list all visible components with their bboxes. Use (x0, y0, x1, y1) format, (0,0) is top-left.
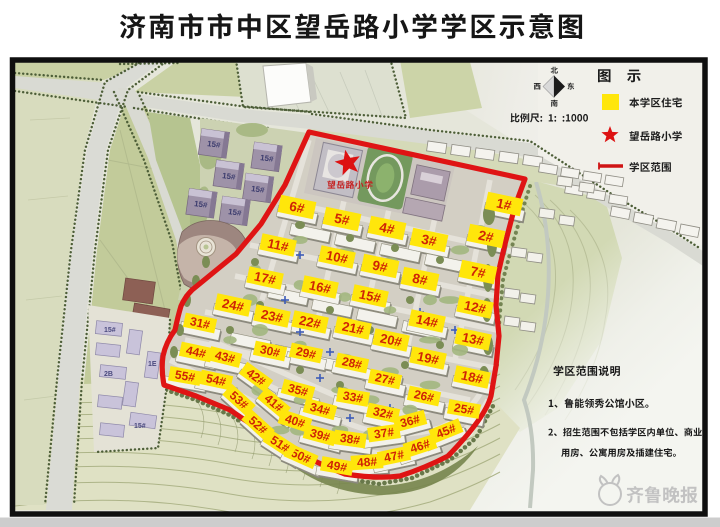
svg-text:1E: 1E (148, 361, 157, 368)
svg-text:15#: 15# (104, 327, 116, 334)
svg-text:15#: 15# (260, 153, 275, 164)
svg-text:38#: 38# (339, 431, 361, 448)
svg-text:15#: 15# (194, 199, 209, 210)
svg-text:15#: 15# (207, 139, 222, 150)
svg-text:15#: 15# (222, 171, 237, 182)
svg-text:37#: 37# (373, 425, 395, 442)
svg-text:15#: 15# (228, 207, 243, 218)
svg-text:15#: 15# (251, 184, 266, 195)
svg-text:48#: 48# (357, 454, 378, 469)
svg-text:15#: 15# (134, 423, 146, 430)
svg-text:2B: 2B (104, 371, 113, 378)
